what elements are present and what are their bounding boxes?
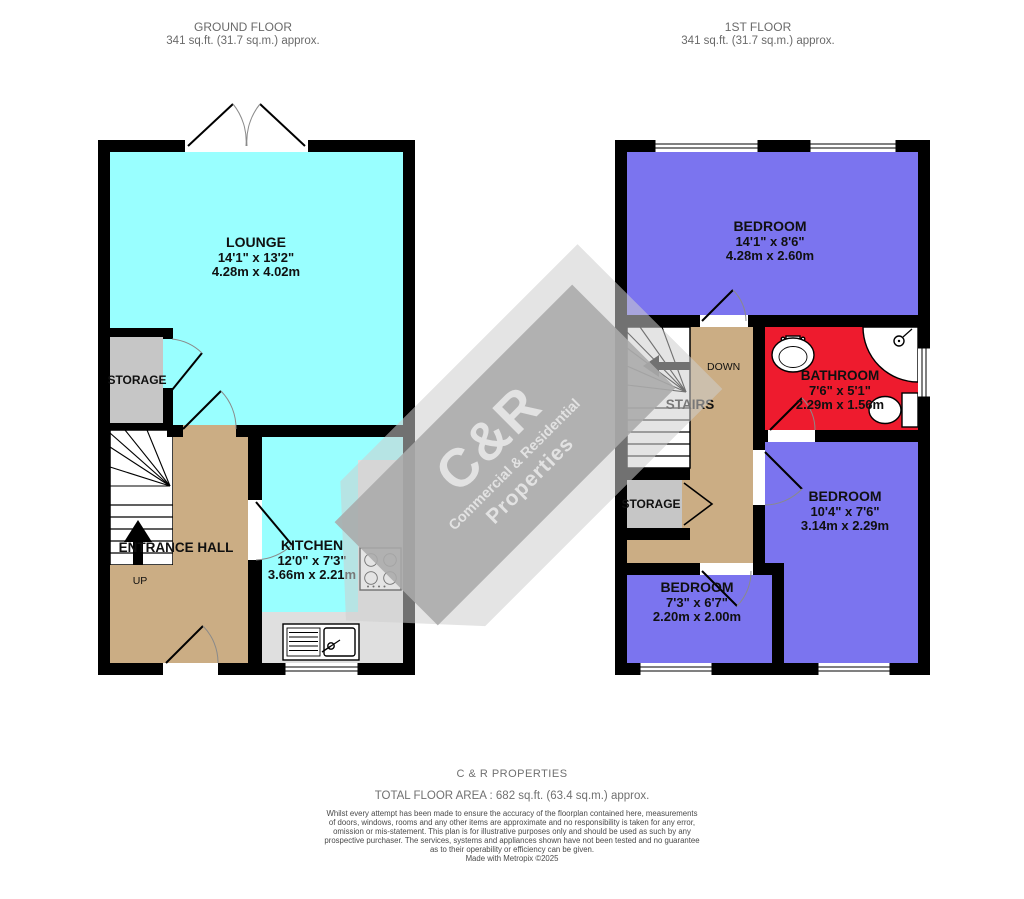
bedroom-front-label: BEDROOM (733, 218, 806, 234)
bedroom-small-imperial: 7'3" x 6'7" (666, 595, 728, 610)
first-floor-title: 1ST FLOOR (608, 20, 908, 34)
disclaimer-line: omission or mis-statement. This plan is … (0, 827, 1024, 836)
storage-gf-label: STORAGE (107, 373, 166, 387)
bedroom-rear-imperial: 10'4" x 7'6" (810, 504, 879, 519)
landing-strip (627, 540, 690, 563)
bedroom-rear-metric: 3.14m x 2.29m (801, 518, 889, 533)
storage-1f-label: STORAGE (621, 497, 680, 511)
disclaimer-line: prospective purchaser. The services, sys… (0, 836, 1024, 845)
kitchen-imperial: 12'0" x 7'3" (277, 553, 346, 568)
window-bathroom (918, 348, 930, 397)
disclaimer-line: Whilst every attempt has been made to en… (0, 809, 1024, 818)
entrance-hall-label: ENTRANCE HALL (119, 540, 234, 555)
window-gf-bottom (285, 663, 358, 675)
bathroom-label: BATHROOM (801, 368, 880, 383)
first-floor-header: 1ST FLOOR 341 sq.ft. (31.7 sq.m.) approx… (608, 20, 908, 48)
window-1f-top-left (655, 140, 758, 152)
kitchen-label: KITCHEN (281, 537, 343, 553)
bedroom-rear-label: BEDROOM (808, 488, 881, 504)
down-label: DOWN (707, 361, 740, 373)
footer-disclaimer: Whilst every attempt has been made to en… (0, 809, 1024, 864)
bedroom-small-metric: 2.20m x 2.00m (653, 609, 741, 624)
lounge-label: LOUNGE (226, 234, 286, 250)
footer-credit: Made with Metropix ©2025 (0, 854, 1024, 864)
first-floor-area: 341 sq.ft. (31.7 sq.m.) approx. (608, 34, 908, 48)
disclaimer-line: as to their operability or efficiency ca… (0, 845, 1024, 854)
bedroom-small-label: BEDROOM (660, 579, 733, 595)
window-1f-bottom-right (818, 663, 890, 675)
ground-floor-title: GROUND FLOOR (93, 20, 393, 34)
window-1f-bottom-left (640, 663, 712, 675)
sink-icon (283, 624, 359, 660)
up-label: UP (133, 575, 148, 587)
lounge-imperial: 14'1" x 13'2" (218, 250, 294, 265)
lounge-metric: 4.28m x 4.02m (212, 264, 300, 279)
hall-door-threshold (183, 425, 236, 437)
window-1f-top-right (810, 140, 896, 152)
bedroom-front-metric: 4.28m x 2.60m (726, 248, 814, 263)
footer-company: C & R PROPERTIES (0, 768, 1024, 780)
french-doors-icon (188, 104, 305, 146)
footer-total-area: TOTAL FLOOR AREA : 682 sq.ft. (63.4 sq.m… (0, 790, 1024, 802)
ground-floor-header: GROUND FLOOR 341 sq.ft. (31.7 sq.m.) app… (93, 20, 393, 48)
bathroom-imperial: 7'6" x 5'1" (809, 383, 871, 398)
bedroom-front-imperial: 14'1" x 8'6" (735, 234, 804, 249)
bathroom-metric: 2.29m x 1.56m (796, 397, 884, 412)
kitchen-metric: 3.66m x 2.21m (268, 567, 356, 582)
floorplan-page: GROUND FLOOR 341 sq.ft. (31.7 sq.m.) app… (0, 0, 1024, 899)
ground-floor-area: 341 sq.ft. (31.7 sq.m.) approx. (93, 34, 393, 48)
disclaimer-line: of doors, windows, rooms and any other i… (0, 818, 1024, 827)
